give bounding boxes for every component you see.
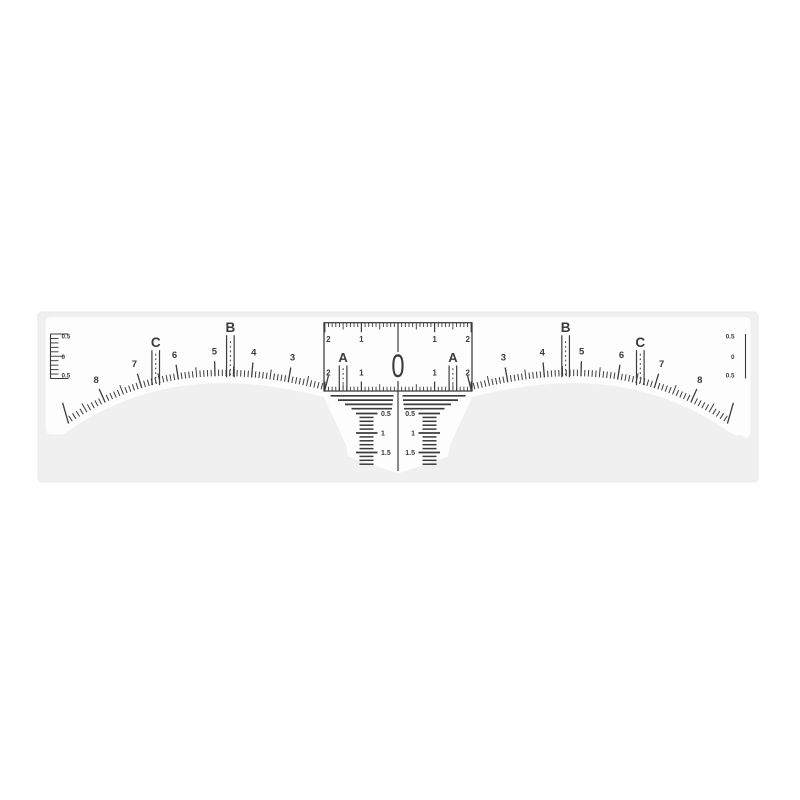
arc-number-7-left: 7: [132, 359, 137, 370]
arc-number-8-right: 8: [697, 375, 702, 386]
top-scale-label: 2: [326, 335, 331, 344]
arc-number-5-right: 5: [579, 346, 585, 357]
drop-label-right: 1: [411, 430, 415, 437]
side-scale-label-left: 0: [62, 354, 66, 361]
drop-label-right: 1.5: [405, 450, 415, 457]
letter-b-right: B: [561, 320, 571, 335]
arc-number-4-left: 4: [251, 347, 257, 358]
arc-number-6-left: 6: [172, 350, 177, 361]
letter-b-left: B: [225, 320, 235, 335]
arc-number-5-left: 5: [212, 346, 218, 357]
arc-number-3-right: 3: [501, 353, 506, 364]
side-scale-label-right: 0: [731, 354, 735, 361]
letter-c-left: C: [151, 335, 161, 350]
arc-number-8-left: 8: [94, 375, 99, 386]
arc-tick: [536, 372, 537, 378]
center-zero-label: 0: [391, 349, 404, 384]
side-scale-label-left: 0.5: [62, 334, 71, 341]
top-scale-label: 1: [432, 335, 437, 344]
eyebrow-mapping-ruler-graphic: 345678BC345678BC21122112AA00.50.5111.51.…: [0, 0, 800, 800]
bottom-scale-label: 1: [432, 369, 437, 378]
bottom-scale-label: 2: [465, 369, 470, 378]
bottom-scale-label: 2: [326, 369, 331, 378]
side-scale-label-left: 0.5: [62, 373, 71, 380]
side-scale-label-right: 0.5: [726, 334, 735, 341]
drop-label-left: 1.5: [381, 450, 391, 457]
arc-number-4-right: 4: [540, 347, 546, 358]
arc-number-7-right: 7: [659, 359, 664, 370]
letter-c-right: C: [635, 335, 645, 350]
drop-label-left: 1: [381, 430, 385, 437]
arc-tick: [540, 371, 541, 377]
arc-number-3-left: 3: [290, 353, 295, 364]
drop-label-left: 0.5: [381, 411, 391, 418]
top-scale-label: 2: [465, 335, 470, 344]
bottom-scale-label: 1: [359, 369, 364, 378]
product-photo: 345678BC345678BC21122112AA00.50.5111.51.…: [0, 0, 800, 800]
letter-a-right: A: [448, 350, 458, 365]
top-scale-label: 1: [359, 335, 364, 344]
arc-tick: [603, 371, 604, 377]
drop-label-right: 0.5: [405, 411, 415, 418]
page: { "colors": { "page_background": "#fffff…: [0, 0, 800, 800]
arc-tick: [259, 372, 260, 378]
side-scale-label-right: 0.5: [726, 373, 735, 380]
center-zero-group: 0: [391, 349, 404, 384]
letter-a-left: A: [338, 350, 348, 365]
arc-tick: [192, 371, 193, 377]
arc-tick: [255, 371, 256, 377]
arc-number-6-right: 6: [619, 350, 624, 361]
